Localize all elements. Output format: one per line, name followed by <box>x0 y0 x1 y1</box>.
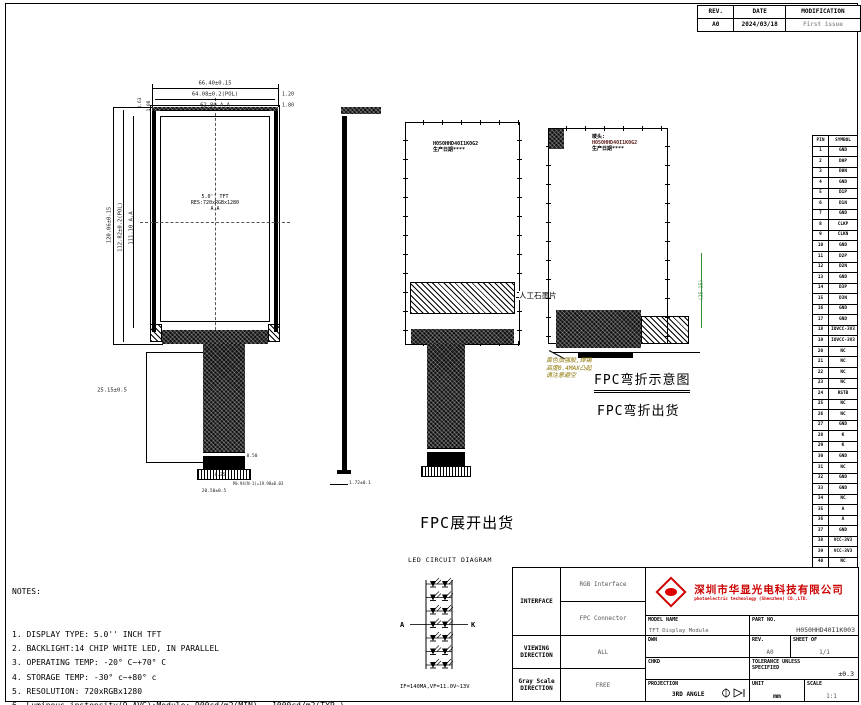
pin-cell: D3N <box>829 294 858 305</box>
pin-cell: 6 <box>813 199 829 210</box>
pin-cell: 3 <box>813 167 829 178</box>
chkd-cell: CHKD <box>646 658 750 680</box>
pin-row: 12D2N <box>813 262 858 273</box>
projection-cell: PROJECTION 3RD ANGLE <box>646 680 750 701</box>
pin-cell: 26 <box>813 410 829 421</box>
pin-row: 17GND <box>813 315 858 326</box>
tolerance-value: ±0.3 <box>838 670 854 678</box>
revision-header-rev: REV. <box>698 6 734 19</box>
pin-row: 29K <box>813 441 858 452</box>
led-terminal-label: A <box>400 621 405 629</box>
rev-label: REV. <box>752 637 764 643</box>
pin-row: 8CLKP <box>813 220 858 231</box>
note-item: 2. BACKLIGHT:14 CHIP WHITE LED, IN PARAL… <box>12 642 344 656</box>
pin-table: PIN SYMBOL 1GND2D0P3D0N4GND5D1P6D1N7GND8… <box>812 135 858 568</box>
back-view-fpc-end-bar <box>427 453 465 466</box>
pin-row: 5D1P <box>813 188 858 199</box>
bend-view-date-label: 生产日期**** <box>592 146 637 152</box>
tolerance-label: TOLERANCE UNLESS SPECIFIED <box>752 659 822 671</box>
front-view-aa-label: A.A <box>180 206 250 212</box>
pin-cell: 8 <box>813 220 829 231</box>
pin-cell: GND <box>829 146 858 157</box>
front-view-corner-hatch-left <box>150 324 162 342</box>
pin-cell: D0N <box>829 167 858 178</box>
dim-label: 62.80 A.A <box>200 103 230 109</box>
pin-row: 4GND <box>813 178 858 189</box>
pin-row: 14D3P <box>813 283 858 294</box>
pin-cell: GND <box>829 209 858 220</box>
company-logo-cell: 深圳市华显光电科技有限公司 photoelectric technology (… <box>646 568 858 616</box>
dim-label: P0.94(N-1)=19.98±0.03 <box>233 482 284 486</box>
dim-label: 111.10 A.A <box>129 211 135 244</box>
yellow-note-line2: 高度0.4MAX凸起 <box>546 365 592 373</box>
company-name-en: photoelectric technology (Shenzhen) CO.,… <box>694 597 844 602</box>
pin-cell: 1 <box>813 146 829 157</box>
revision-rev: A0 <box>698 19 734 32</box>
pin-cell: NC <box>829 368 858 379</box>
back-view-date-label: 生产日期**** <box>433 147 478 153</box>
part-no-cell: PART NO. H050HHD40I1K003 <box>750 616 858 636</box>
notes-title: NOTES: <box>12 585 344 599</box>
pin-cell: GND <box>829 241 858 252</box>
sheet-value: 1/1 <box>791 649 858 656</box>
back-view-fpc-band <box>411 329 514 344</box>
pin-row: 10GND <box>813 241 858 252</box>
pin-cell: GND <box>829 273 858 284</box>
pin-cell: A <box>829 505 858 516</box>
pin-row: 37GND <box>813 526 858 537</box>
notes-block: NOTES: 1. DISPLAY TYPE: 5.0'' INCH TFT2.… <box>12 557 344 705</box>
unit-label: UNIT <box>752 681 764 687</box>
dim-label: 66.40±0.15 <box>198 81 231 87</box>
pin-row: 24RSTB <box>813 389 858 400</box>
fpc-bend-ship-title: FPC弯折出货 <box>597 400 679 419</box>
side-view-body <box>342 116 347 472</box>
bend-view-fpc-fold <box>556 310 641 348</box>
part-no-label: PART NO. <box>752 617 776 623</box>
note-item: 1. DISPLAY TYPE: 5.0'' INCH TFT <box>12 628 344 642</box>
scale-label: SCALE <box>807 681 822 687</box>
pin-cell: D0P <box>829 157 858 168</box>
revision-header-modification: MODIFICATION <box>785 6 860 19</box>
note-item: 3. OPERATING TEMP: -20° C~+70° C <box>12 656 344 670</box>
sheet-cell: SHEET OF 1/1 <box>791 636 858 658</box>
pin-cell: NC <box>829 462 858 473</box>
viewing-direction-value-cell: ALL <box>561 636 646 669</box>
pin-cell: 22 <box>813 368 829 379</box>
pin-cell: 34 <box>813 494 829 505</box>
pin-row: 35A <box>813 505 858 516</box>
pin-cell: 27 <box>813 420 829 431</box>
projection-value: 3RD ANGLE <box>672 691 705 698</box>
pin-cell: 10 <box>813 241 829 252</box>
pin-row: 21NC <box>813 357 858 368</box>
side-view-top-bar <box>341 107 381 114</box>
front-view-fpc-end-bar <box>203 457 245 469</box>
pin-row: 33GND <box>813 484 858 495</box>
pin-cell: 7 <box>813 209 829 220</box>
pin-cell: NC <box>829 410 858 421</box>
pin-row: 19IOVCC-3V3 <box>813 336 858 347</box>
pin-cell: RSTB <box>829 389 858 400</box>
dim-label: 0.50 <box>247 455 258 460</box>
pin-row: 11D2P <box>813 252 858 263</box>
unit-value: mm <box>750 692 804 700</box>
pin-cell: NC <box>829 378 858 389</box>
pin-cell: 31 <box>813 462 829 473</box>
dim-label: 20.50±0.5 <box>202 490 226 495</box>
revision-header-date: DATE <box>734 6 785 19</box>
notes-list: 1. DISPLAY TYPE: 5.0'' INCH TFT2. BACKLI… <box>12 628 344 705</box>
back-view-label: H050HHD40I1K0G2 生产日期**** <box>433 141 478 153</box>
pin-table-body: 1GND2D0P3D0N4GND5D1P6D1N7GND8CLKP9CLKN10… <box>813 146 858 568</box>
pin-cell: 24 <box>813 389 829 400</box>
company-logo-icon <box>656 576 687 607</box>
pin-cell: 32 <box>813 473 829 484</box>
sheet-label: SHEET OF <box>793 637 817 643</box>
pin-cell: GND <box>829 473 858 484</box>
pin-cell: 18 <box>813 325 829 336</box>
pin-row: 1GND <box>813 146 858 157</box>
pin-col-header: PIN <box>813 136 829 147</box>
drawing-sheet: REV. DATE MODIFICATION A0 2024/03/18 Fir… <box>0 0 861 705</box>
pin-cell: 13 <box>813 273 829 284</box>
led-spec-label: IF=140MA,VF=11.0V~13V <box>400 684 470 691</box>
front-view-left-bezel <box>152 110 156 332</box>
pin-cell: 16 <box>813 304 829 315</box>
bend-view-label: 唛头: H050HHD40I1K0G2 生产日期**** <box>592 134 637 152</box>
pin-row: 22NC <box>813 368 858 379</box>
pin-cell: 35 <box>813 505 829 516</box>
pin-cell: GND <box>829 420 858 431</box>
pin-row: 16GND <box>813 304 858 315</box>
led-circuit-diagram: AK <box>392 572 482 684</box>
bend-view-corner-block <box>549 129 564 149</box>
dim-label: 1.20 <box>282 93 294 98</box>
pin-cell: 30 <box>813 452 829 463</box>
pin-cell: A <box>829 515 858 526</box>
pin-cell: GND <box>829 526 858 537</box>
dwn-label: DWN <box>648 637 657 643</box>
pin-cell: NC <box>829 346 858 357</box>
dim-label: 64.08±0.2(POL) <box>192 92 238 98</box>
pin-cell: NC <box>829 357 858 368</box>
part-no-value: H050HHD40I1K003 <box>796 626 855 634</box>
pin-cell: CLKP <box>829 220 858 231</box>
pin-cell: D3P <box>829 283 858 294</box>
pin-cell: 36 <box>813 515 829 526</box>
pin-cell: GND <box>829 178 858 189</box>
dim-label: 25.15±0.5 <box>97 388 127 394</box>
pin-cell: D2P <box>829 252 858 263</box>
pin-cell: 38 <box>813 536 829 547</box>
pin-row: 7GND <box>813 209 858 220</box>
pin-cell: K <box>829 431 858 442</box>
pin-row: 18IOVCC-3V3 <box>813 325 858 336</box>
pin-cell: 17 <box>813 315 829 326</box>
pin-row: 30GND <box>813 452 858 463</box>
pin-cell: 9 <box>813 230 829 241</box>
pin-cell: 12 <box>813 262 829 273</box>
pin-row: 31NC <box>813 462 858 473</box>
note-item: 5. RESOLUTION: 720xRGBx1280 <box>12 685 344 699</box>
pin-row: 13GND <box>813 273 858 284</box>
pin-cell: 21 <box>813 357 829 368</box>
pin-row: 9CLKN <box>813 230 858 241</box>
pin-row: 32GND <box>813 473 858 484</box>
pin-cell: 28 <box>813 431 829 442</box>
gray-scale-value-cell: FREE <box>561 669 646 701</box>
note-item: 6. Luminous instensity(9 AVG):Module: 90… <box>12 699 344 705</box>
chkd-label: CHKD <box>648 659 660 665</box>
bend-view-hatch <box>641 316 689 344</box>
front-view-fpc-tail <box>203 344 245 452</box>
yellow-note-line3: 请注意避空 <box>546 372 592 380</box>
note-item: 4. STORAGE TEMP: -30° c~+80° c <box>12 671 344 685</box>
yellow-reinforcement-note: 黄色加强胶,焊锡 高度0.4MAX凸起 请注意避空 <box>546 357 592 380</box>
pin-row: 3D0N <box>813 167 858 178</box>
pin-row: 27GND <box>813 420 858 431</box>
rev-cell: REV. A0 <box>750 636 791 658</box>
pin-cell: 29 <box>813 441 829 452</box>
pin-cell: D2N <box>829 262 858 273</box>
tolerance-cell: TOLERANCE UNLESS SPECIFIED ±0.3 <box>750 658 858 680</box>
pin-row: 25NC <box>813 399 858 410</box>
pin-cell: NC <box>829 399 858 410</box>
pin-cell: K <box>829 441 858 452</box>
dim-label: 0.35 <box>215 474 226 479</box>
fpc-bend-diagram-title: FPC弯折示意图 <box>594 369 690 393</box>
pin-cell: VCC-3V3 <box>829 536 858 547</box>
pin-row: 23NC <box>813 378 858 389</box>
pin-row: 26NC <box>813 410 858 421</box>
unit-cell: UNIT mm <box>750 680 805 701</box>
pin-cell: IOVCC-3V3 <box>829 325 858 336</box>
model-name-value: TFT Display Module <box>649 628 709 634</box>
pin-cell: 23 <box>813 378 829 389</box>
pin-cell: CLKN <box>829 230 858 241</box>
pin-cell: D1N <box>829 199 858 210</box>
front-view-right-bezel <box>274 110 278 332</box>
front-view-fpc-band <box>162 330 268 344</box>
led-terminal-label: K <box>471 621 476 629</box>
interface-fpc-cell: FPC Connector <box>561 602 646 636</box>
pin-row: 20NC <box>813 346 858 357</box>
model-name-label: MODEL NAME <box>648 617 678 623</box>
pin-cell: GND <box>829 452 858 463</box>
symbol-col-header: SYMBOL <box>829 136 858 147</box>
dim-label: 1.63 <box>139 98 144 109</box>
revision-header-row: REV. DATE MODIFICATION <box>698 6 861 19</box>
pin-cell: 25 <box>813 399 829 410</box>
back-view-connector <box>421 466 471 477</box>
pin-cell: NC <box>829 494 858 505</box>
pin-cell: D1P <box>829 188 858 199</box>
pin-cell: GND <box>829 484 858 495</box>
front-view-centerline-h <box>140 222 290 223</box>
front-view-center-text: 5.0'' TFT RES:720xRGBx1280 A.A <box>180 194 250 212</box>
scale-cell: SCALE 1:1 <box>805 680 858 701</box>
revision-data-row: A0 2024/03/18 First issue <box>698 19 861 32</box>
dim-label: 112.82±0.2(POL) <box>118 202 124 252</box>
side-view-foot <box>337 470 351 474</box>
pin-table-header: PIN SYMBOL <box>813 136 858 147</box>
pin-cell: 15 <box>813 294 829 305</box>
dim-label: 1.80 <box>282 104 294 109</box>
interface-label-cell: INTERFACE <box>513 568 561 636</box>
pin-row: 38VCC-3V3 <box>813 536 858 547</box>
graphite-sheet <box>410 282 515 314</box>
pin-row: 34NC <box>813 494 858 505</box>
pin-row: 36A <box>813 515 858 526</box>
pin-cell: 33 <box>813 484 829 495</box>
pin-cell: GND <box>829 304 858 315</box>
pin-cell: 19 <box>813 336 829 347</box>
projection-label: PROJECTION <box>648 681 678 687</box>
front-view-centerline-v <box>215 98 216 350</box>
viewing-direction-label-cell: VIEWING DIRECTION <box>513 636 561 669</box>
fpc-flat-ship-title: FPC展开出货 <box>420 512 514 533</box>
yellow-note-line1: 黄色加强胶,焊锡 <box>546 357 592 365</box>
revision-table: REV. DATE MODIFICATION A0 2024/03/18 Fir… <box>697 5 861 32</box>
pin-cell: GND <box>829 315 858 326</box>
pin-cell: 2 <box>813 157 829 168</box>
pin-row: 6D1N <box>813 199 858 210</box>
pin-cell: 11 <box>813 252 829 263</box>
pin-cell: 5 <box>813 188 829 199</box>
revision-date: 2024/03/18 <box>734 19 785 32</box>
pin-row: 15D3N <box>813 294 858 305</box>
pin-cell: 14 <box>813 283 829 294</box>
rev-value: A0 <box>750 649 790 656</box>
gray-scale-label-cell: Gray Scale DIRECTION <box>513 669 561 701</box>
pin-row: 39VCC-3V3 <box>813 547 858 558</box>
pin-row: 28K <box>813 431 858 442</box>
model-name-cell: MODEL NAME TFT Display Module <box>646 616 750 636</box>
pin-cell: 4 <box>813 178 829 189</box>
led-circuit-title: LED CIRCUIT DIAGRAM <box>408 557 492 565</box>
pin-cell: 20 <box>813 346 829 357</box>
company-name-zh: 深圳市华显光电科技有限公司 <box>694 582 844 597</box>
third-angle-icon <box>720 687 746 699</box>
dim-label: 120.06±0.15 <box>107 207 113 243</box>
dim-label: 1.08 <box>148 101 153 112</box>
pin-cell: IOVCC-3V3 <box>829 336 858 347</box>
pin-cell: 39 <box>813 547 829 558</box>
pin-cell: 37 <box>813 526 829 537</box>
interface-rgb-cell: RGB Interface <box>561 568 646 602</box>
back-view-fpc-tail <box>427 344 465 448</box>
pin-row: 2D0P <box>813 157 858 168</box>
dwn-cell: DWN <box>646 636 750 658</box>
pin-cell: VCC-3V3 <box>829 547 858 558</box>
revision-modification: First issue <box>785 19 860 32</box>
front-view-corner-hatch-right <box>268 324 280 342</box>
dim-label: 1.72±0.1 <box>349 482 371 487</box>
dim-label: (25.15) <box>700 279 705 300</box>
scale-value: 1:1 <box>805 693 858 700</box>
title-block: INTERFACE RGB Interface FPC Connector VI… <box>512 567 859 702</box>
